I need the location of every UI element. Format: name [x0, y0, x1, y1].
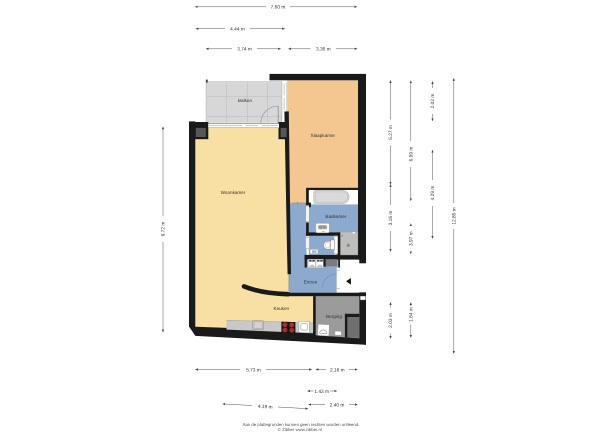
- svg-text:Keuken: Keuken: [274, 306, 290, 311]
- svg-text:3.97 m: 3.97 m: [408, 231, 414, 246]
- svg-text:Berging: Berging: [326, 314, 342, 319]
- svg-text:12.85 m: 12.85 m: [451, 207, 457, 224]
- svg-text:Slaapkamer: Slaapkamer: [311, 133, 336, 138]
- svg-text:9.72 m: 9.72 m: [161, 222, 167, 237]
- svg-text:Entree: Entree: [304, 280, 318, 285]
- svg-text:6.99 m: 6.99 m: [408, 147, 414, 162]
- svg-text:5.73 m: 5.73 m: [246, 367, 261, 373]
- svg-text:4.29 m: 4.29 m: [430, 186, 436, 201]
- svg-text:3.16 m: 3.16 m: [388, 211, 394, 226]
- svg-text:© Zibber www.zibber.nl: © Zibber www.zibber.nl: [278, 427, 322, 432]
- svg-text:3.74 m: 3.74 m: [237, 47, 252, 53]
- svg-text:2.03 m: 2.03 m: [388, 313, 394, 328]
- svg-text:1.84 m: 1.84 m: [408, 307, 414, 322]
- svg-text:3.36 m: 3.36 m: [316, 47, 331, 53]
- svg-text:4.19 m: 4.19 m: [258, 404, 273, 411]
- svg-text:1.43 m: 1.43 m: [314, 389, 329, 395]
- svg-text:Balkon: Balkon: [238, 98, 252, 103]
- svg-text:7.60 m: 7.60 m: [271, 5, 286, 11]
- svg-text:Badkamer: Badkamer: [325, 214, 346, 219]
- svg-text:5.27 m: 5.27 m: [388, 125, 394, 140]
- svg-text:Woonkamer: Woonkamer: [221, 190, 246, 195]
- svg-text:4.44 m: 4.44 m: [230, 27, 245, 33]
- svg-text:2.40 m: 2.40 m: [330, 402, 345, 408]
- svg-text:2.02 m: 2.02 m: [430, 94, 436, 109]
- svg-text:2.16 m: 2.16 m: [330, 367, 345, 373]
